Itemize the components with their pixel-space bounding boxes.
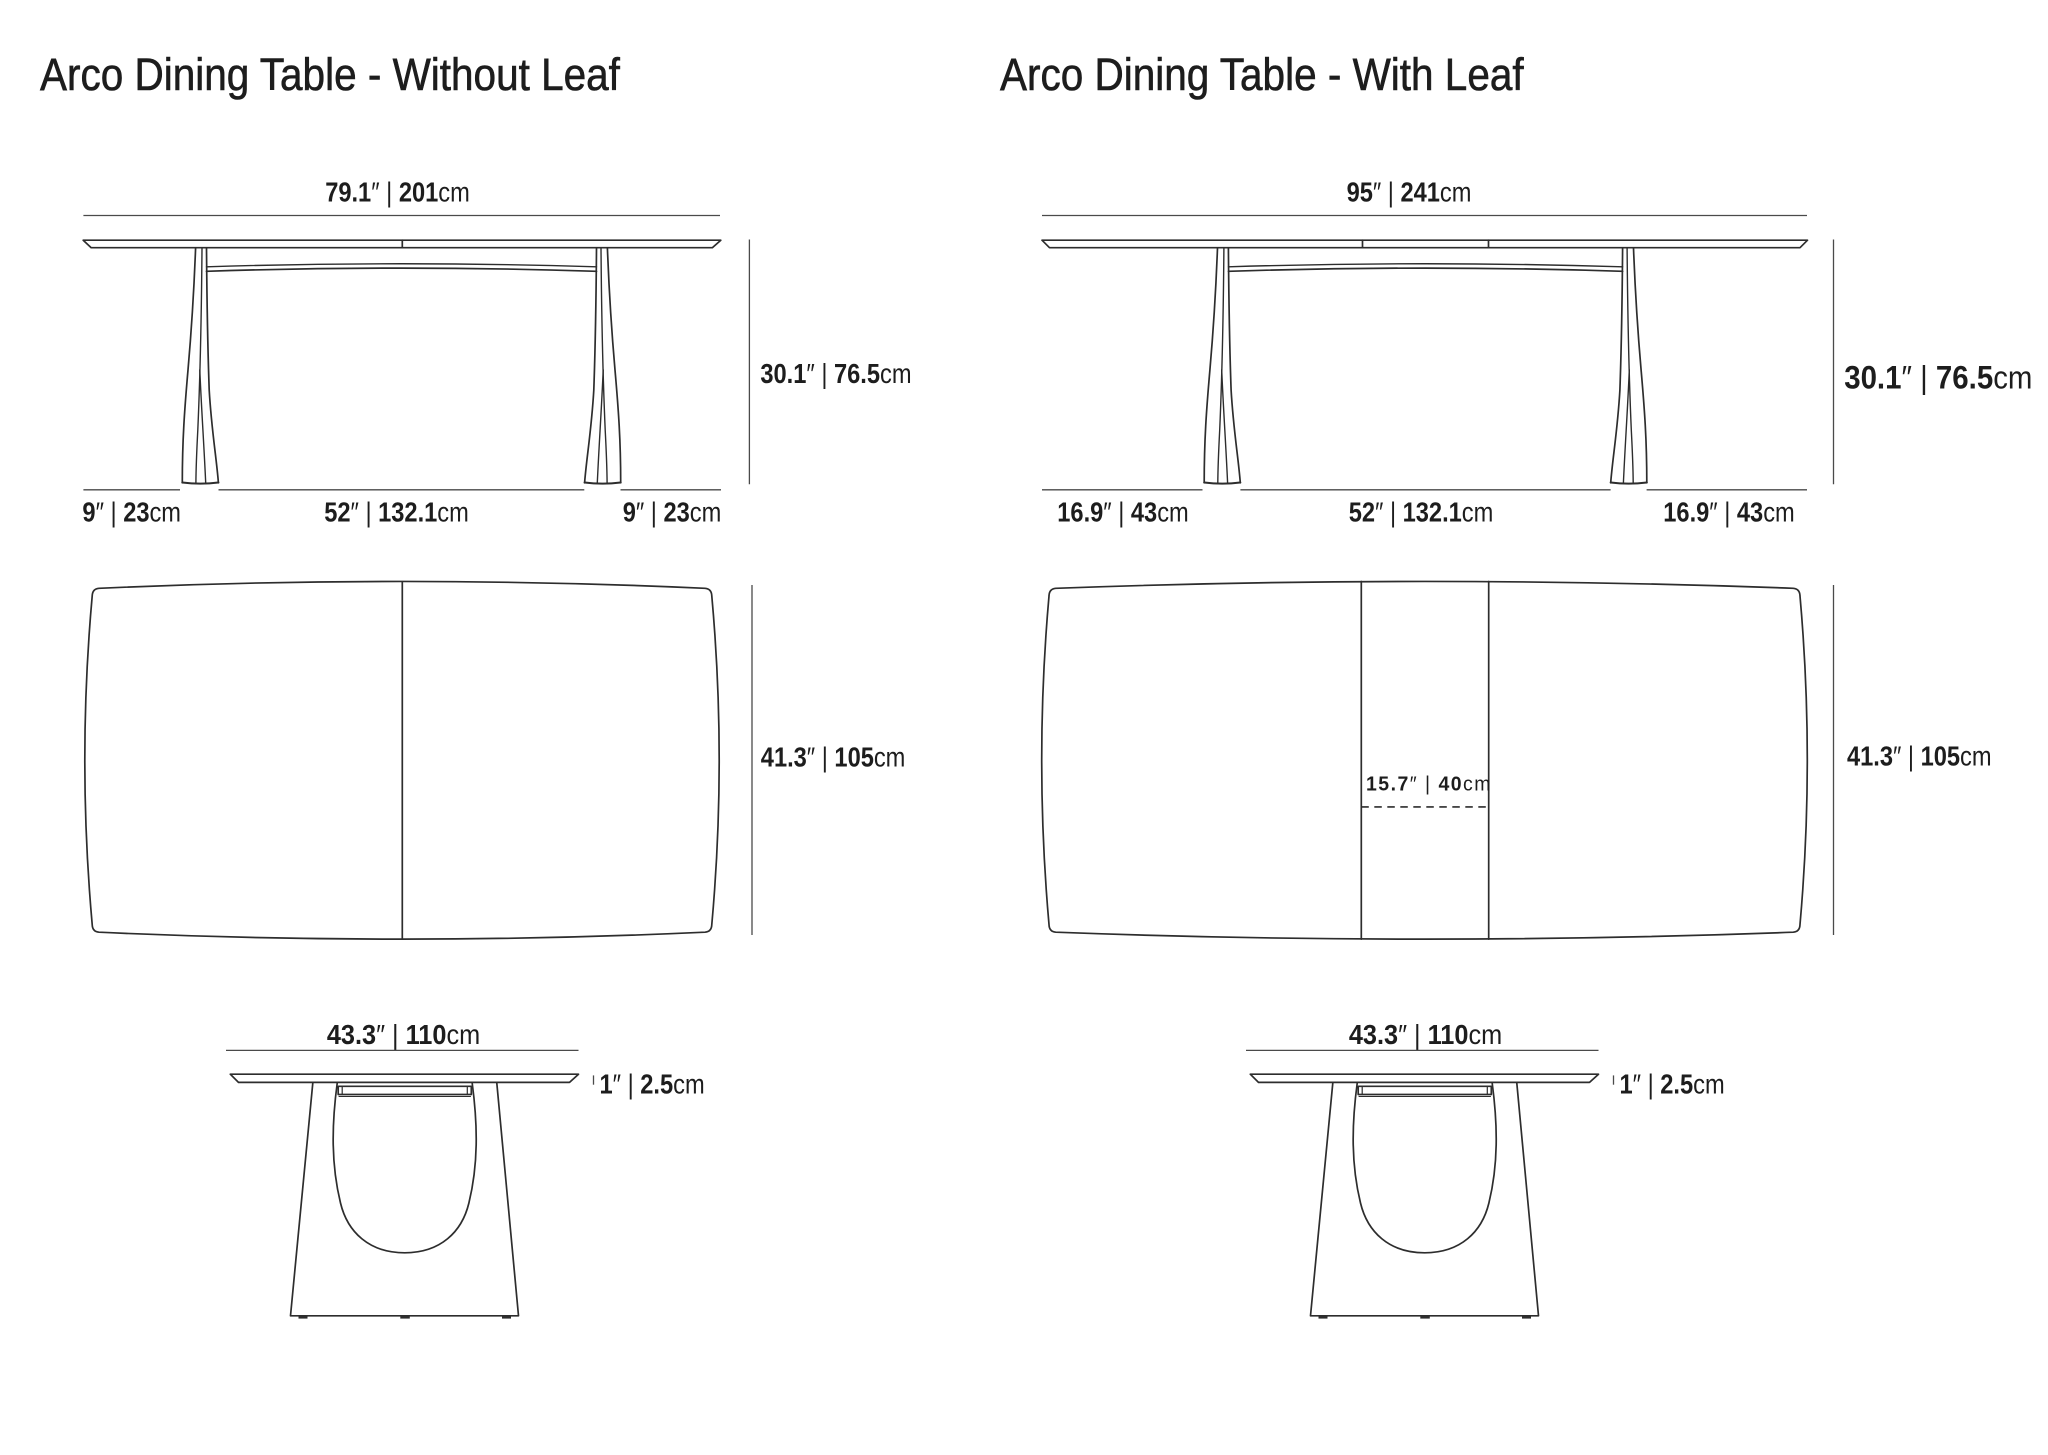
svg-text:1″ | 2.5cm: 1″ | 2.5cm [600, 1070, 705, 1100]
svg-text:30.1″ | 76.5cm: 30.1″ | 76.5cm [1844, 359, 2032, 395]
svg-text:15.7″ | 40cm: 15.7″ | 40cm [1366, 773, 1492, 796]
svg-text:43.3″ | 110cm: 43.3″ | 110cm [327, 1019, 480, 1050]
svg-text:Arco Dining Table - With Leaf: Arco Dining Table - With Leaf [1000, 50, 1524, 100]
svg-text:9″ | 23cm: 9″ | 23cm [82, 498, 181, 528]
svg-text:9″ | 23cm: 9″ | 23cm [623, 498, 722, 528]
svg-text:41.3″ | 105cm: 41.3″ | 105cm [761, 743, 906, 773]
svg-text:52″ | 132.1cm: 52″ | 132.1cm [324, 498, 469, 528]
svg-text:Arco Dining Table - Without Le: Arco Dining Table - Without Leaf [40, 50, 620, 100]
svg-text:52″ | 132.1cm: 52″ | 132.1cm [1349, 498, 1494, 528]
svg-text:16.9″ | 43cm: 16.9″ | 43cm [1663, 498, 1794, 528]
svg-text:95″ | 241cm: 95″ | 241cm [1347, 178, 1472, 208]
svg-text:79.1″ | 201cm: 79.1″ | 201cm [325, 178, 470, 208]
svg-text:1″ | 2.5cm: 1″ | 2.5cm [1620, 1070, 1725, 1100]
svg-text:30.1″ | 76.5cm: 30.1″ | 76.5cm [760, 359, 911, 389]
svg-text:43.3″ | 110cm: 43.3″ | 110cm [1349, 1019, 1502, 1050]
svg-text:41.3″ | 105cm: 41.3″ | 105cm [1847, 742, 1992, 772]
svg-text:16.9″ | 43cm: 16.9″ | 43cm [1057, 498, 1188, 528]
